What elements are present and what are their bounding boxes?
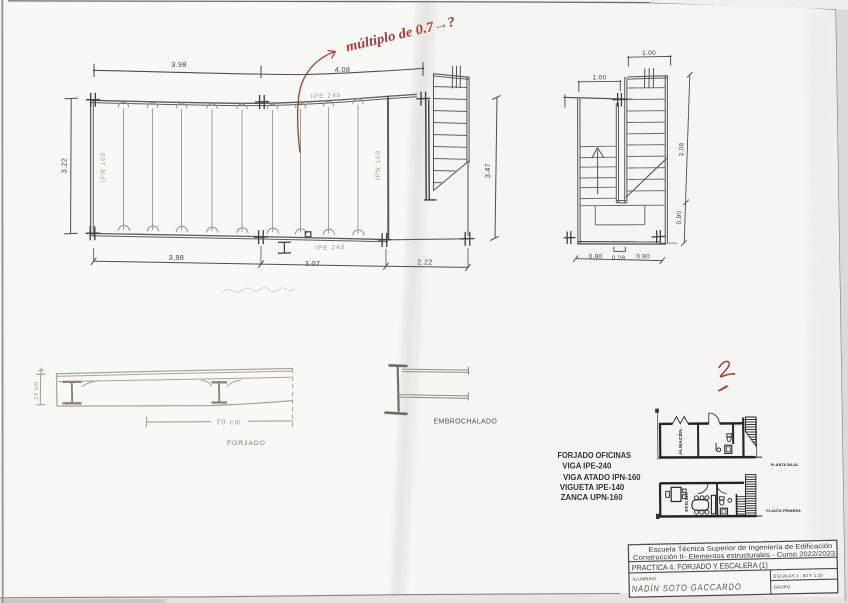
svg-text:VIGA IPE-240: VIGA IPE-240 — [562, 461, 612, 470]
svg-text:0.90: 0.90 — [676, 211, 683, 225]
svg-text:IPN 160: IPN 160 — [375, 150, 382, 180]
svg-text:4.08: 4.08 — [335, 65, 351, 74]
svg-text:VIGA ATADO IPN-160: VIGA ATADO IPN-160 — [563, 473, 641, 482]
svg-text:FORJADO: FORJADO — [227, 440, 266, 447]
svg-text:14 cm: 14 cm — [34, 381, 40, 400]
svg-text:3.98: 3.98 — [169, 253, 185, 262]
svg-text:3.98: 3.98 — [171, 60, 187, 69]
svg-text:ALUMNA/O: ALUMNA/O — [632, 576, 657, 582]
svg-text:3.07: 3.07 — [305, 259, 321, 268]
svg-text:2.22: 2.22 — [417, 257, 433, 266]
svg-text:GRUPO: GRUPO — [774, 584, 791, 589]
svg-text:IPE 240: IPE 240 — [315, 244, 346, 252]
svg-text:0.90: 0.90 — [589, 254, 603, 261]
svg-text:EMBROCHALADO: EMBROCHALADO — [434, 419, 498, 426]
svg-text:3.08: 3.08 — [679, 143, 686, 157]
svg-text:ZANCA UPN-160: ZANCA UPN-160 — [561, 493, 624, 502]
svg-text:3.47: 3.47 — [485, 163, 492, 178]
svg-text:VIGUETA IPE-140: VIGUETA IPE-140 — [560, 483, 625, 492]
svg-text:ASEO: ASEO — [714, 442, 718, 451]
svg-text:PLANTA BAJA: PLANTA BAJA — [771, 463, 798, 467]
svg-text:PLANTA PRIMERA: PLANTA PRIMERA — [766, 509, 801, 513]
svg-text:IPN 160: IPN 160 — [100, 152, 107, 182]
svg-text:1.00: 1.00 — [642, 50, 656, 57]
svg-text:0.90: 0.90 — [636, 254, 650, 261]
svg-text:0.28: 0.28 — [612, 255, 626, 262]
svg-text:1.00: 1.00 — [592, 75, 606, 82]
svg-text:FORJADO OFICINAS: FORJADO OFICINAS — [558, 451, 632, 460]
svg-text:OFICINA: OFICINA — [684, 492, 689, 512]
svg-text:3.22: 3.22 — [60, 158, 69, 174]
svg-text:70 cm: 70 cm — [216, 417, 242, 426]
